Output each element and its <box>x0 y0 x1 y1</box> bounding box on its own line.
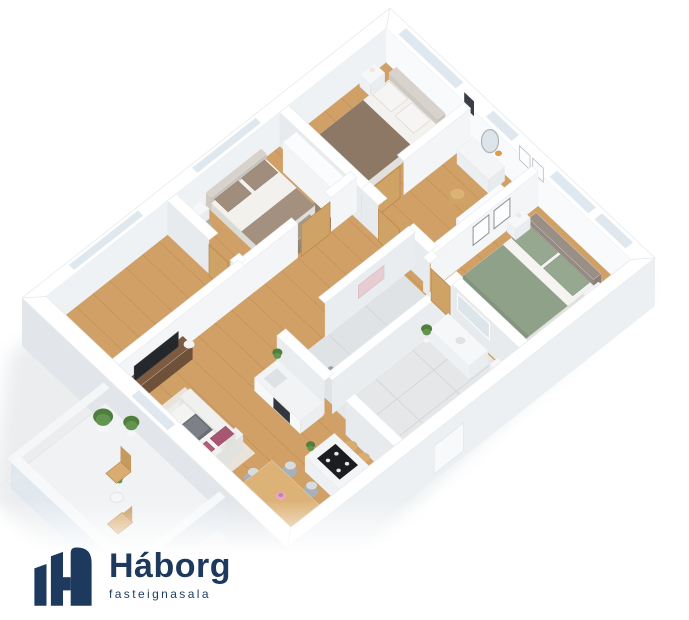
floorplan-screenshot: Háborg fasteignasala <box>0 0 689 620</box>
brand-name: Háborg <box>109 549 231 585</box>
brand-text: Háborg fasteignasala <box>109 549 231 601</box>
h-bars-icon <box>30 542 96 608</box>
brand-tagline: fasteignasala <box>109 587 231 601</box>
floorplan-3d-render <box>0 0 689 620</box>
brand-logo: Háborg fasteignasala <box>30 542 231 608</box>
